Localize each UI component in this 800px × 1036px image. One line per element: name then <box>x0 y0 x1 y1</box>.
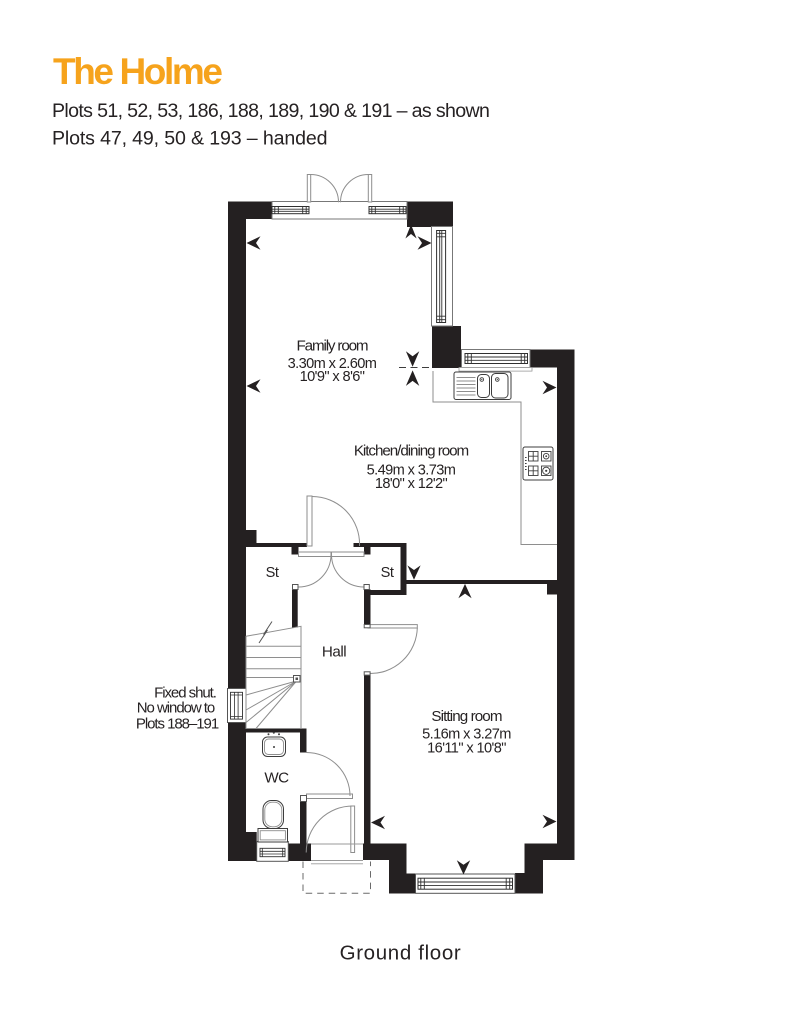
svg-text:10'9" x 8'6": 10'9" x 8'6" <box>300 369 365 385</box>
svg-text:Ground floor: Ground floor <box>340 942 462 965</box>
svg-text:St: St <box>381 565 394 581</box>
svg-text:16'11" x 10'8": 16'11" x 10'8" <box>427 740 506 756</box>
svg-text:Kitchen/dining room: Kitchen/dining room <box>354 443 469 460</box>
svg-text:Family room: Family room <box>297 337 368 354</box>
svg-text:Plots 51, 52, 53, 186, 188, 18: Plots 51, 52, 53, 186, 188, 189, 190 & 1… <box>52 100 489 122</box>
svg-text:No window to: No window to <box>137 700 215 717</box>
svg-text:St: St <box>266 565 279 581</box>
svg-text:Hall: Hall <box>322 644 346 661</box>
svg-text:Plots 188–191: Plots 188–191 <box>136 716 219 733</box>
svg-text:18'0" x 12'2": 18'0" x 12'2" <box>375 476 448 492</box>
svg-text:WC: WC <box>264 770 289 787</box>
svg-text:Sitting room: Sitting room <box>431 708 501 725</box>
svg-text:The Holme: The Holme <box>53 51 222 92</box>
svg-text:Plots 47, 49, 50 & 193 – hande: Plots 47, 49, 50 & 193 – handed <box>52 128 327 150</box>
